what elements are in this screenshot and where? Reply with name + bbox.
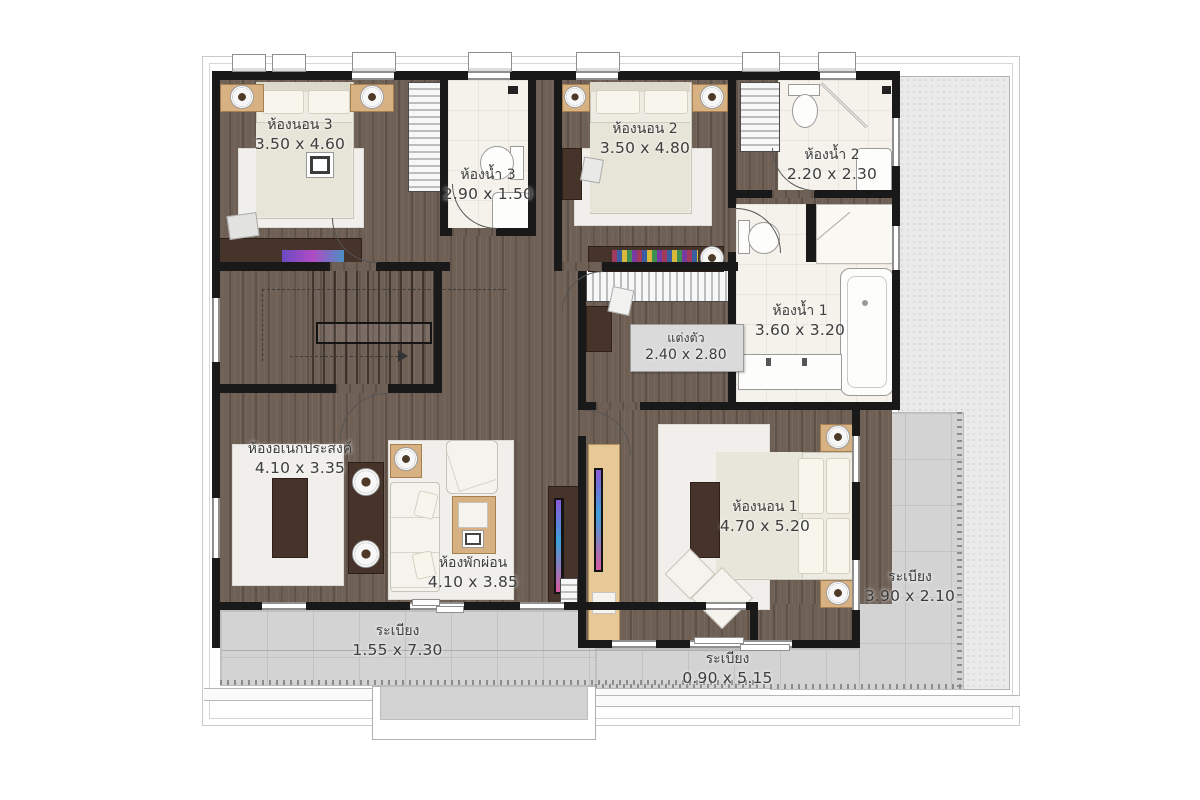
wall — [212, 384, 442, 393]
room-dimensions: 1.55 x 7.30 — [330, 640, 465, 660]
balcony-railing — [957, 412, 962, 688]
room-dimensions: 0.90 x 5.15 — [660, 668, 795, 688]
room-dimensions: 3.60 x 3.20 — [740, 320, 860, 340]
room-name: ระเบียง — [660, 650, 795, 668]
tray — [458, 502, 488, 528]
room-label-multipurpose: ห้องอเนกประสงค์ 4.10 x 3.35 — [218, 440, 382, 478]
wardrobe-bedroom-2 — [740, 82, 780, 152]
room-label-balcony-bottom-left: ระเบียง 1.55 x 7.30 — [330, 622, 465, 660]
window — [468, 71, 510, 80]
room-name: ห้องนอน 2 — [565, 120, 725, 138]
bathroom-partition-wall — [806, 204, 816, 262]
door-opening — [562, 262, 602, 271]
wardrobe-dressing — [586, 268, 734, 302]
bathtub-drain — [862, 300, 868, 306]
lamp — [394, 447, 418, 471]
faucet — [802, 358, 807, 366]
room-name: ห้องนอน 3 — [220, 116, 380, 134]
lamp — [826, 581, 850, 605]
window — [262, 602, 306, 610]
shower-head — [508, 86, 518, 94]
tv-screen — [596, 470, 601, 570]
room-name: ห้องพักผ่อน — [408, 554, 538, 572]
vent — [576, 52, 620, 72]
room-name: ห้องน้ำ 1 — [740, 302, 860, 320]
wall — [554, 71, 562, 271]
sliding-door-leaf — [436, 606, 464, 613]
vent — [232, 54, 266, 72]
bay-projection-floor — [380, 686, 588, 720]
door-opening — [452, 228, 496, 236]
room-name: ห้องน้ำ 2 — [772, 146, 892, 164]
lamp — [700, 85, 724, 109]
room-name: ห้องอเนกประสงค์ — [218, 440, 382, 458]
wall — [578, 410, 586, 648]
room-label-bathroom-2: ห้องน้ำ 2 2.20 x 2.30 — [772, 146, 892, 184]
faucet — [766, 358, 771, 366]
room-name: ห้องนอน 1 — [690, 498, 840, 516]
window — [892, 118, 900, 166]
door-opening — [772, 190, 814, 198]
vent — [818, 52, 856, 72]
room-name: ห้องน้ำ 3 — [438, 166, 538, 184]
chair — [226, 212, 259, 240]
door-opening — [330, 262, 376, 271]
eave-band — [586, 695, 1020, 707]
shower-area — [816, 204, 894, 264]
room-dimensions: 3.90 x 2.10 — [858, 586, 962, 606]
window — [576, 71, 618, 80]
room-name: แต่งตัว — [630, 330, 742, 346]
stair-walk-line — [290, 356, 398, 357]
table-multipurpose — [272, 478, 308, 558]
sliding-door-leaf — [412, 599, 440, 606]
sliding-door-leaf — [694, 637, 744, 644]
dressing-desk — [586, 306, 612, 352]
shower-head — [882, 86, 891, 94]
pillow — [644, 90, 688, 114]
room-label-dressing: แต่งตัว 2.40 x 2.80 — [630, 330, 742, 364]
room-dimensions: 2.20 x 2.30 — [772, 164, 892, 184]
room-dimensions: 2.90 x 1.50 — [438, 184, 538, 204]
vent — [352, 52, 396, 72]
wall — [736, 402, 900, 410]
window — [520, 602, 564, 610]
pillow — [596, 90, 640, 114]
room-label-balcony-right: ระเบียง 3.90 x 2.10 — [858, 568, 962, 606]
balcony-door — [852, 436, 860, 482]
room-dimensions: 2.40 x 2.80 — [630, 346, 742, 364]
wall — [528, 71, 536, 236]
room-label-bedroom-2: ห้องนอน 2 3.50 x 4.80 — [565, 120, 725, 158]
double-vanity — [738, 354, 842, 390]
room-label-bedroom-3: ห้องนอน 3 3.50 x 4.60 — [220, 116, 380, 154]
lamp — [352, 540, 380, 568]
pillow — [308, 90, 350, 114]
lamp — [826, 425, 850, 449]
chair — [580, 156, 604, 183]
wall — [728, 190, 900, 198]
room-label-bathroom-3: ห้องน้ำ 3 2.90 x 1.50 — [438, 166, 538, 204]
magazine — [462, 530, 484, 548]
window — [352, 71, 394, 80]
door-opening — [596, 402, 640, 410]
window — [612, 640, 656, 648]
room-dimensions: 3.50 x 4.60 — [220, 134, 380, 154]
room-dimensions: 4.10 x 3.35 — [218, 458, 382, 478]
lamp — [360, 85, 384, 109]
vent — [272, 54, 306, 72]
window — [820, 71, 856, 80]
window — [892, 226, 900, 270]
room-dimensions: 3.50 x 4.80 — [565, 138, 725, 158]
lamp — [564, 86, 586, 108]
vent — [468, 52, 512, 72]
window — [212, 298, 220, 362]
wall — [440, 71, 448, 236]
stair-direction-arrow — [398, 350, 408, 362]
room-name: ระเบียง — [858, 568, 962, 586]
window — [212, 498, 220, 558]
door-opening — [336, 384, 388, 393]
pillow — [262, 90, 304, 114]
stair-railing — [316, 322, 432, 344]
room-dimensions: 4.70 x 5.20 — [690, 516, 840, 536]
lamp — [230, 85, 254, 109]
wall — [434, 262, 442, 393]
room-label-balcony-bottom-center: ระเบียง 0.90 x 5.15 — [660, 650, 795, 688]
room-label-bedroom-1: ห้องนอน 1 4.70 x 5.20 — [690, 498, 840, 536]
window — [706, 602, 746, 610]
door-opening — [728, 208, 736, 252]
door-opening — [578, 410, 586, 436]
room-name: ระเบียง — [330, 622, 465, 640]
stair-walk-line — [262, 289, 263, 361]
vent — [742, 52, 780, 72]
desk-runner — [282, 250, 344, 262]
toilet — [792, 94, 818, 128]
stair-walk-line — [262, 289, 506, 290]
magazine — [306, 152, 334, 178]
floor-vent — [560, 578, 578, 604]
floor-plan: ห้องนอน 3 3.50 x 4.60 ห้องน้ำ 3 2.90 x 1… — [0, 0, 1200, 800]
room-dimensions: 4.10 x 3.85 — [408, 572, 538, 592]
room-label-living: ห้องพักผ่อน 4.10 x 3.85 — [408, 554, 538, 592]
room-label-bathroom-1: ห้องน้ำ 1 3.60 x 3.20 — [740, 302, 860, 340]
